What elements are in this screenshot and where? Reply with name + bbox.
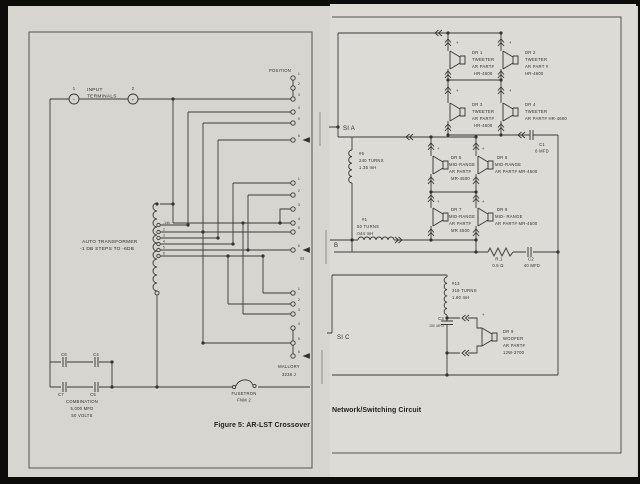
coil13-label: 1.60 mH [452, 295, 470, 300]
contact-number: 5 [298, 226, 300, 230]
contact-number: 2 [298, 82, 300, 86]
tap-label: -1db [163, 221, 170, 225]
driver-label: DR 8 [497, 207, 508, 212]
terminal-2-number: 2 [132, 86, 135, 91]
driver-label: AR PART# [449, 169, 472, 174]
coil6-label: #6 [359, 151, 365, 156]
driver-label: MID- RANGE [495, 214, 523, 219]
driver-label: DR 4 [525, 102, 536, 107]
right-figure-caption: Network/Switching Circuit [332, 407, 422, 414]
driver-label: TWEETER [472, 57, 494, 62]
contact-number: 4 [298, 106, 300, 110]
polarity-plus: + [509, 40, 512, 45]
polarity-plus: + [482, 312, 485, 317]
c1-value: 6 MFD [535, 149, 549, 154]
mallory-label-line1: MALLORY [278, 364, 300, 369]
terminal-1-number: 1 [73, 86, 76, 91]
contact-number: 5 [298, 117, 300, 121]
coil1-label: #1 [362, 217, 368, 222]
polarity-plus: + [482, 146, 485, 151]
driver-label: DR 7 [451, 207, 462, 212]
contact-number: 5 [298, 337, 300, 341]
driver-label: DR 5 [451, 155, 462, 160]
contact-number: 2 [298, 189, 300, 193]
tap-label: 5 [163, 246, 165, 250]
input-label-line1: INPUT [87, 87, 103, 93]
driver-label: MR 4500 [451, 228, 470, 233]
polarity-plus: + [456, 40, 459, 45]
c3-label: C3 [438, 316, 444, 321]
coil13-label: #13 [452, 281, 460, 286]
mallory-label-line2: 3236 J [282, 372, 296, 377]
left-figure-caption: Figure 5: AR-LST Crossover [214, 422, 310, 429]
driver-label: HR-4600 [525, 71, 544, 76]
driver-label: AR PART# MR-4500 [495, 221, 538, 226]
coil1-label: .044 mH [356, 231, 374, 236]
contact-number: 2 [298, 298, 300, 302]
minus-sign: − [72, 98, 75, 103]
position-label: POSITION [269, 68, 291, 73]
tap-label: 4 [163, 240, 165, 244]
r1-value: 0.5 Ω [492, 263, 503, 268]
driver-label: DR 3 [472, 102, 483, 107]
si-switch-label: SI [300, 256, 304, 261]
driver-label: AR PART # [525, 64, 549, 69]
cap-c5-label: C5 [90, 392, 96, 397]
contact-number: 3 [298, 308, 300, 312]
driver-label: AR PART# [472, 116, 495, 121]
driver-label: MID-RANGE [449, 214, 475, 219]
driver-label: AR PART# [472, 64, 495, 69]
fuse-label-line1: FUSETRON [231, 391, 256, 396]
contact-number: 3 [298, 203, 300, 207]
node-si-a: SI A [343, 126, 355, 132]
coil13-label: 316 TURNS [452, 288, 477, 293]
contact-number: 1 [298, 177, 300, 181]
driver-label: WOOFER [503, 336, 523, 341]
node-b: B [334, 243, 338, 249]
driver-label: DR 2 [525, 50, 536, 55]
driver-label: TWEETER [525, 109, 547, 114]
transformer-label-line1: AUTO TRANSFORMER [82, 239, 138, 245]
c2-value: 40 MFD [524, 263, 540, 268]
r1-label: R.1 [495, 257, 503, 262]
polarity-plus: + [456, 88, 459, 93]
tap-label: 3 [163, 234, 165, 238]
driver-label: AR PART# [503, 343, 526, 348]
polarity-plus: + [509, 88, 512, 93]
driver-label: DR 1 [472, 50, 483, 55]
contact-number: 6 [298, 134, 300, 138]
c1-label: C1 [539, 142, 545, 147]
driver-label: TWEETER [525, 57, 547, 62]
node-si-c: SI C [337, 335, 350, 341]
coil1-label: 50 TURNS [357, 224, 379, 229]
driver-label: AR PART# HR-4600 [525, 116, 567, 121]
driver-label: DR 9 [503, 329, 514, 334]
cap-c6-label: C6 [61, 352, 67, 357]
contact-number: 6 [298, 244, 300, 248]
input-label-line2: TERMINALS [87, 94, 117, 100]
tap-label: 6 [163, 252, 165, 256]
driver-label: HR-4600 [474, 71, 493, 76]
polarity-plus: + [437, 199, 440, 204]
driver-label: MID-RANGE [449, 162, 475, 167]
schematic-scan: − + 1 2 INPUT TERMINALS -1db 2 3 4 5 6 A… [0, 0, 640, 484]
coil6-label: 240 TURNS [359, 158, 384, 163]
plus-sign: + [131, 99, 134, 104]
c3-value: 150 MFD [429, 324, 444, 328]
driver-label: 12W-3700 [503, 350, 525, 355]
fuse-label-line2: FNM 2 [237, 398, 251, 403]
contact-number: 4 [298, 322, 300, 326]
c2-label: C2 [528, 257, 534, 262]
cap-combo-line3: 50 VOLTS [71, 413, 92, 418]
driver-label: MR-4500 [451, 176, 470, 181]
driver-label: DR 6 [497, 155, 508, 160]
coil6-label: 1.35 mH [359, 165, 377, 170]
polarity-plus: + [437, 146, 440, 151]
driver-label: MID-RANGE [495, 162, 521, 167]
driver-label: HR-4600 [474, 123, 493, 128]
tap-label: 2 [163, 228, 165, 232]
cap-c7-label: C7 [58, 392, 64, 397]
transformer-label-line2: -1 DB STEPS TO -6DB [80, 246, 134, 252]
contact-number: 1 [298, 72, 300, 76]
polarity-plus: + [482, 199, 485, 204]
contact-number: 4 [298, 217, 300, 221]
cap-combo-line2: 5,000 MFD [71, 406, 94, 411]
contact-number: 6 [298, 350, 300, 354]
cap-combo-line1: COMBINATION [66, 399, 98, 404]
contact-number: 1 [298, 287, 300, 291]
driver-label: AR PART# MR-4500 [495, 169, 538, 174]
driver-label: TWEETER [472, 109, 494, 114]
contact-number: 3 [298, 93, 300, 97]
cap-c4-label: C4 [93, 352, 99, 357]
driver-label: AR PART# [449, 221, 472, 226]
